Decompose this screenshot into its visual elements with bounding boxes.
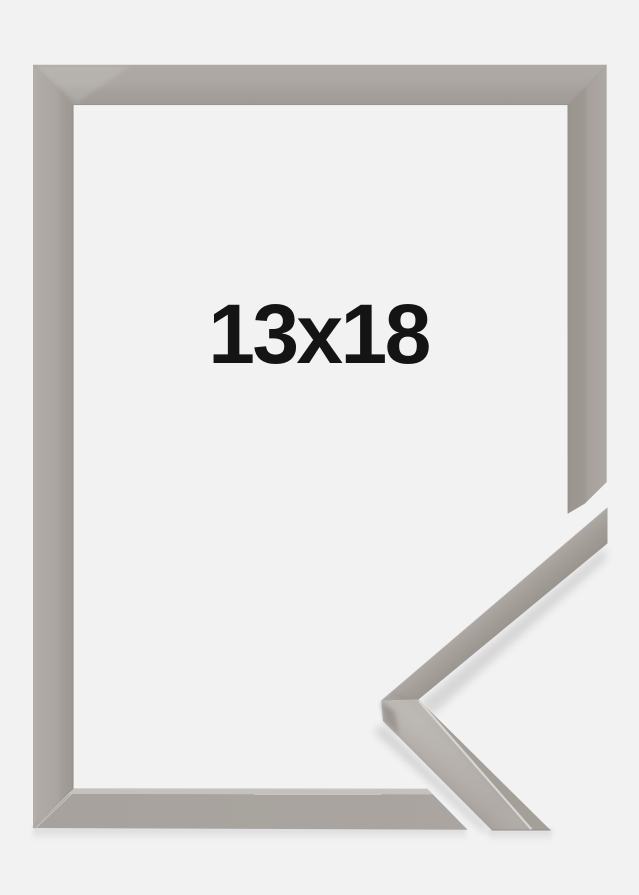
svg-text:13x18: 13x18 [208,287,429,381]
